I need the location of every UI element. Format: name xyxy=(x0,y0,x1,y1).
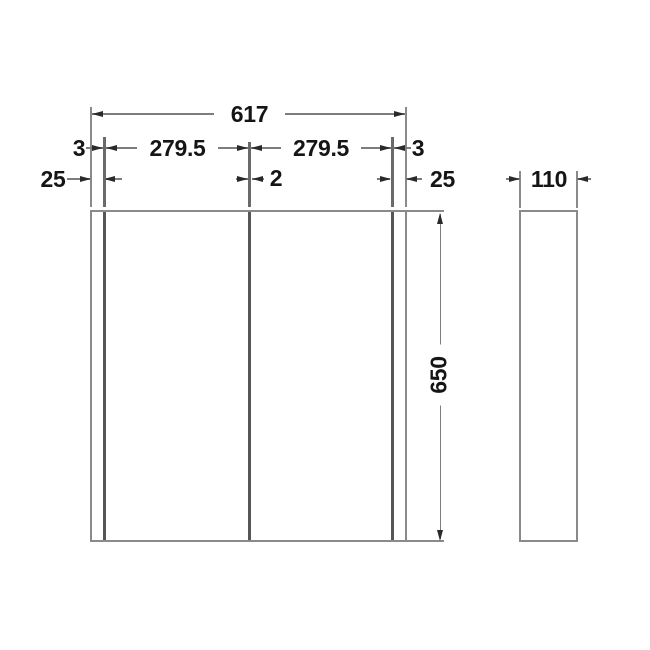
dimension-arrow xyxy=(237,176,248,182)
dimension-arrow xyxy=(252,176,263,182)
dimension-arrow xyxy=(92,111,103,117)
dimension-line-height-upper xyxy=(440,214,442,348)
dim-label-total-width: 617 xyxy=(214,101,285,127)
dimension-arrow xyxy=(251,145,262,151)
front-left-door-edge-line xyxy=(103,212,106,540)
dim-label-right-reveal: 3 xyxy=(403,135,433,161)
dimension-arrow xyxy=(437,213,443,224)
dimension-arrow xyxy=(106,145,117,151)
dim-label-depth: 110 xyxy=(524,166,574,192)
drawing-sheet: 617 3 279.5 279.5 3 25 2 25 110 650 xyxy=(0,0,650,650)
dim-label-right-offset: 25 xyxy=(420,166,465,192)
dimension-arrow xyxy=(237,145,248,151)
dimension-arrow xyxy=(80,176,91,182)
dimension-arrow xyxy=(406,176,417,182)
dimension-arrow xyxy=(509,176,520,182)
dimension-arrow xyxy=(380,145,391,151)
dimension-arrow xyxy=(394,111,405,117)
dim-label-left-door: 279.5 xyxy=(137,135,218,161)
dim-label-center-gap: 2 xyxy=(263,165,289,191)
dimension-arrow xyxy=(104,176,115,182)
dim-label-height: 650 xyxy=(426,345,452,406)
dim-label-right-door: 279.5 xyxy=(281,135,361,161)
dim-label-left-offset: 25 xyxy=(31,166,75,192)
side-view-outline xyxy=(519,210,578,542)
extension-line-center-gap xyxy=(248,142,251,207)
dimension-arrow xyxy=(380,176,391,182)
front-right-door-edge-line xyxy=(391,212,394,540)
dimension-arrow xyxy=(577,176,588,182)
extension-line-height-top xyxy=(407,210,444,212)
dimension-arrow xyxy=(437,530,443,541)
dimension-line-height-lower xyxy=(440,402,442,539)
dim-label-left-reveal: 3 xyxy=(64,135,94,161)
front-center-door-gap-line xyxy=(248,212,251,540)
